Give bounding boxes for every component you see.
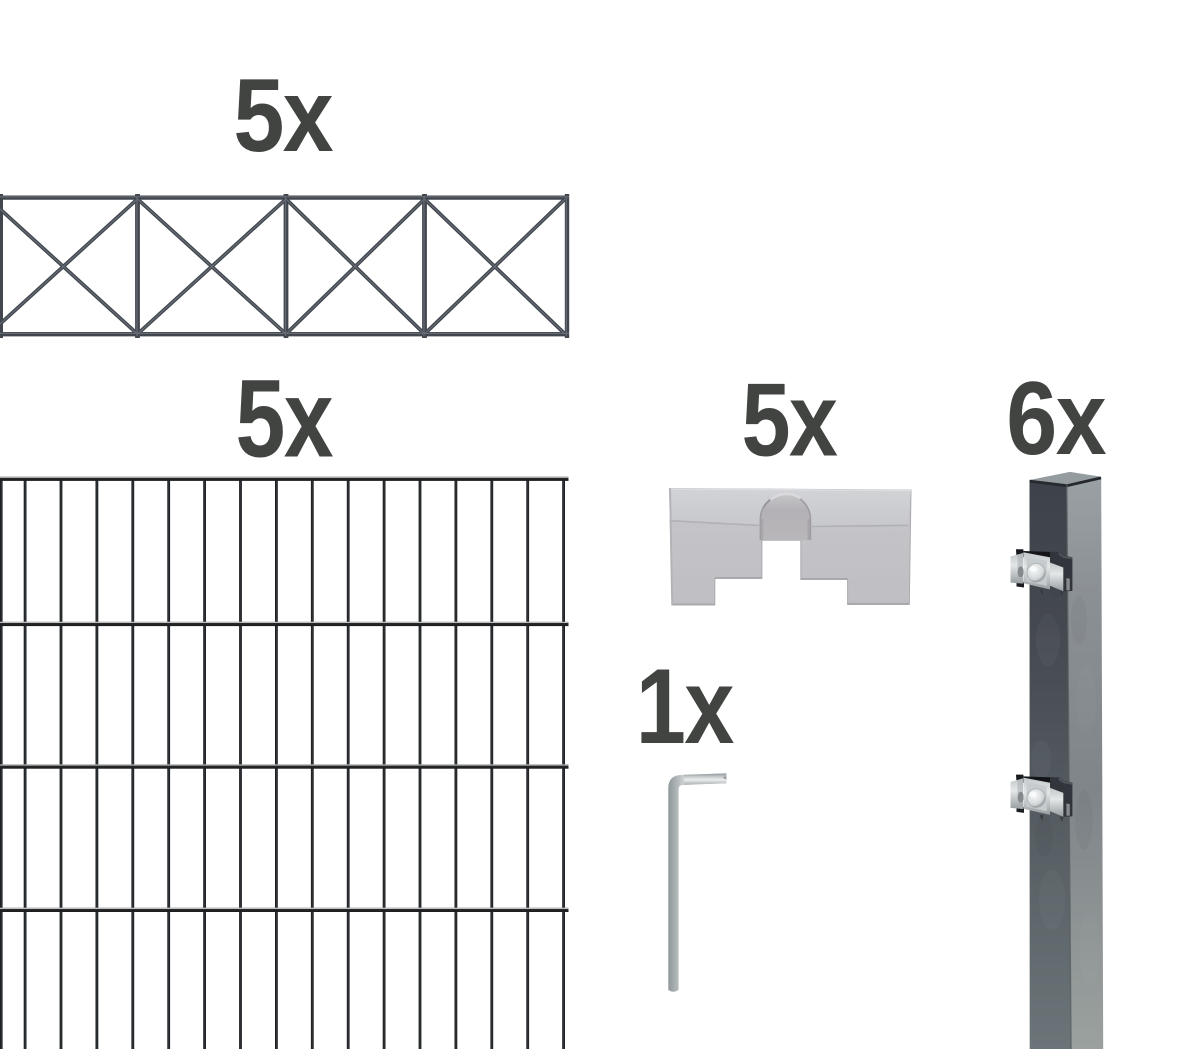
- svg-text:5x: 5x: [236, 358, 334, 481]
- svg-text:5x: 5x: [742, 362, 839, 478]
- svg-text:6x: 6x: [1006, 359, 1106, 476]
- svg-text:1x: 1x: [636, 645, 735, 765]
- svg-text:5x: 5x: [233, 57, 333, 174]
